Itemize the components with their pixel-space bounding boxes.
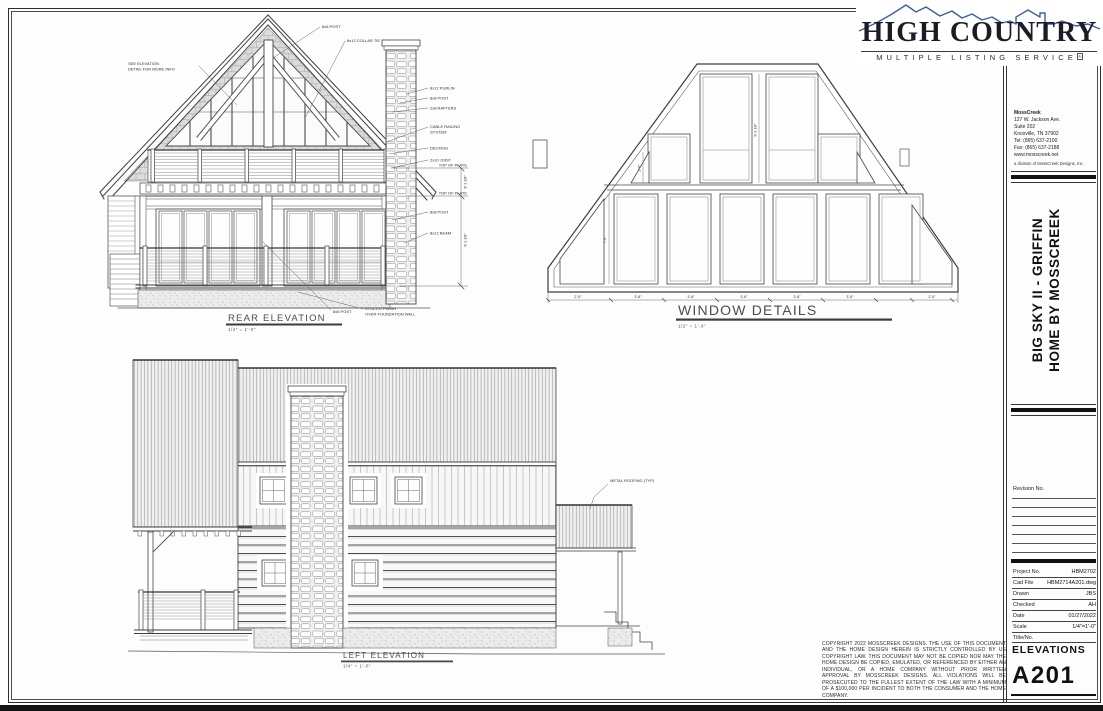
tb-field-rule [1012,577,1096,578]
tb-rule [1011,415,1096,416]
tb-rule [1011,404,1096,405]
mls-logo-title: HIGH COUNTRY [856,17,1103,49]
tb-bar [1011,559,1096,563]
mls-logo-subtitle-text: MULTIPLE LISTING SERVICE [876,53,1077,62]
sheet-number: A201 [1012,662,1098,690]
mls-logo-rule [861,51,1097,52]
plan-sheet: 8x8 POST 8x12 COLLAR TIE SEE ELEVATION D… [0,0,1103,711]
field-label-title-no: Title/No. [1013,635,1033,641]
mls-logo-subtitle: MULTIPLE LISTING SERVICE® [856,53,1103,62]
project-title-line-1: BIG SKY II - GRIFFIN [1029,185,1046,395]
field-value-scale: 1/4"=1'-0" [1012,624,1096,630]
field-value-date: 01/27/2022 [1012,613,1096,619]
sheet-bottom-edge [0,705,1103,711]
revision-row-line [1012,543,1096,544]
sheet-title: ELEVATIONS [1012,644,1098,656]
revision-row-line [1012,516,1096,517]
firm-name: MossCreek [1014,110,1098,117]
firm-website: www.mosscreek.net [1014,152,1098,159]
firm-address-2: Suite 202 [1014,124,1098,131]
copyright-notice: Copyright 2022 MossCreek Designs. The us… [822,641,1006,699]
registered-mark-icon: ® [1077,53,1083,60]
field-value-cad-file: HBM2714A201.dwg [1012,580,1096,586]
tb-field-rule [1012,632,1096,633]
revision-row-line [1012,534,1096,535]
tb-field-rule [1012,599,1096,600]
titleblock-divider-line-2 [1006,60,1007,702]
revision-row-line [1012,507,1096,508]
tb-field-rule [1012,610,1096,611]
field-value-drawn: JBS [1012,591,1096,597]
tb-rule [1011,171,1096,172]
mls-logo: HIGH COUNTRY MULTIPLE LISTING SERVICE® [856,0,1103,66]
revision-header: Revision No. [1013,486,1044,492]
firm-phone: Tel: (865) 637-2100 [1014,138,1098,145]
revision-row-line [1012,498,1096,499]
firm-tagline: a division of MossCreek Designs, Inc. [1014,161,1098,168]
titleblock-divider-line-1 [1003,60,1004,702]
project-title-line-2: HOME BY MOSSCREEK [1046,185,1063,395]
tb-field-rule [1012,642,1096,643]
revision-row-line [1012,525,1096,526]
tb-rule [1011,182,1096,183]
tb-field-rule [1012,588,1096,589]
firm-fax: Fax: (865) 637-2188 [1014,145,1098,152]
field-value-project-no: HBM2702 [1012,569,1096,575]
project-title: BIG SKY II - GRIFFIN HOME BY MOSSCREEK [1029,185,1065,395]
tb-bar [1011,408,1096,412]
revision-row-line [1012,552,1096,553]
sheet-border-inner [11,11,1098,700]
field-value-checked: AH [1012,602,1096,608]
tb-bar [1011,175,1096,179]
tb-field-rule [1012,621,1096,622]
firm-address-1: 127 W. Jackson Ave. [1014,117,1098,124]
firm-address-3: Knoxville, TN 37902 [1014,131,1098,138]
sheet-number-underline [1011,694,1096,696]
